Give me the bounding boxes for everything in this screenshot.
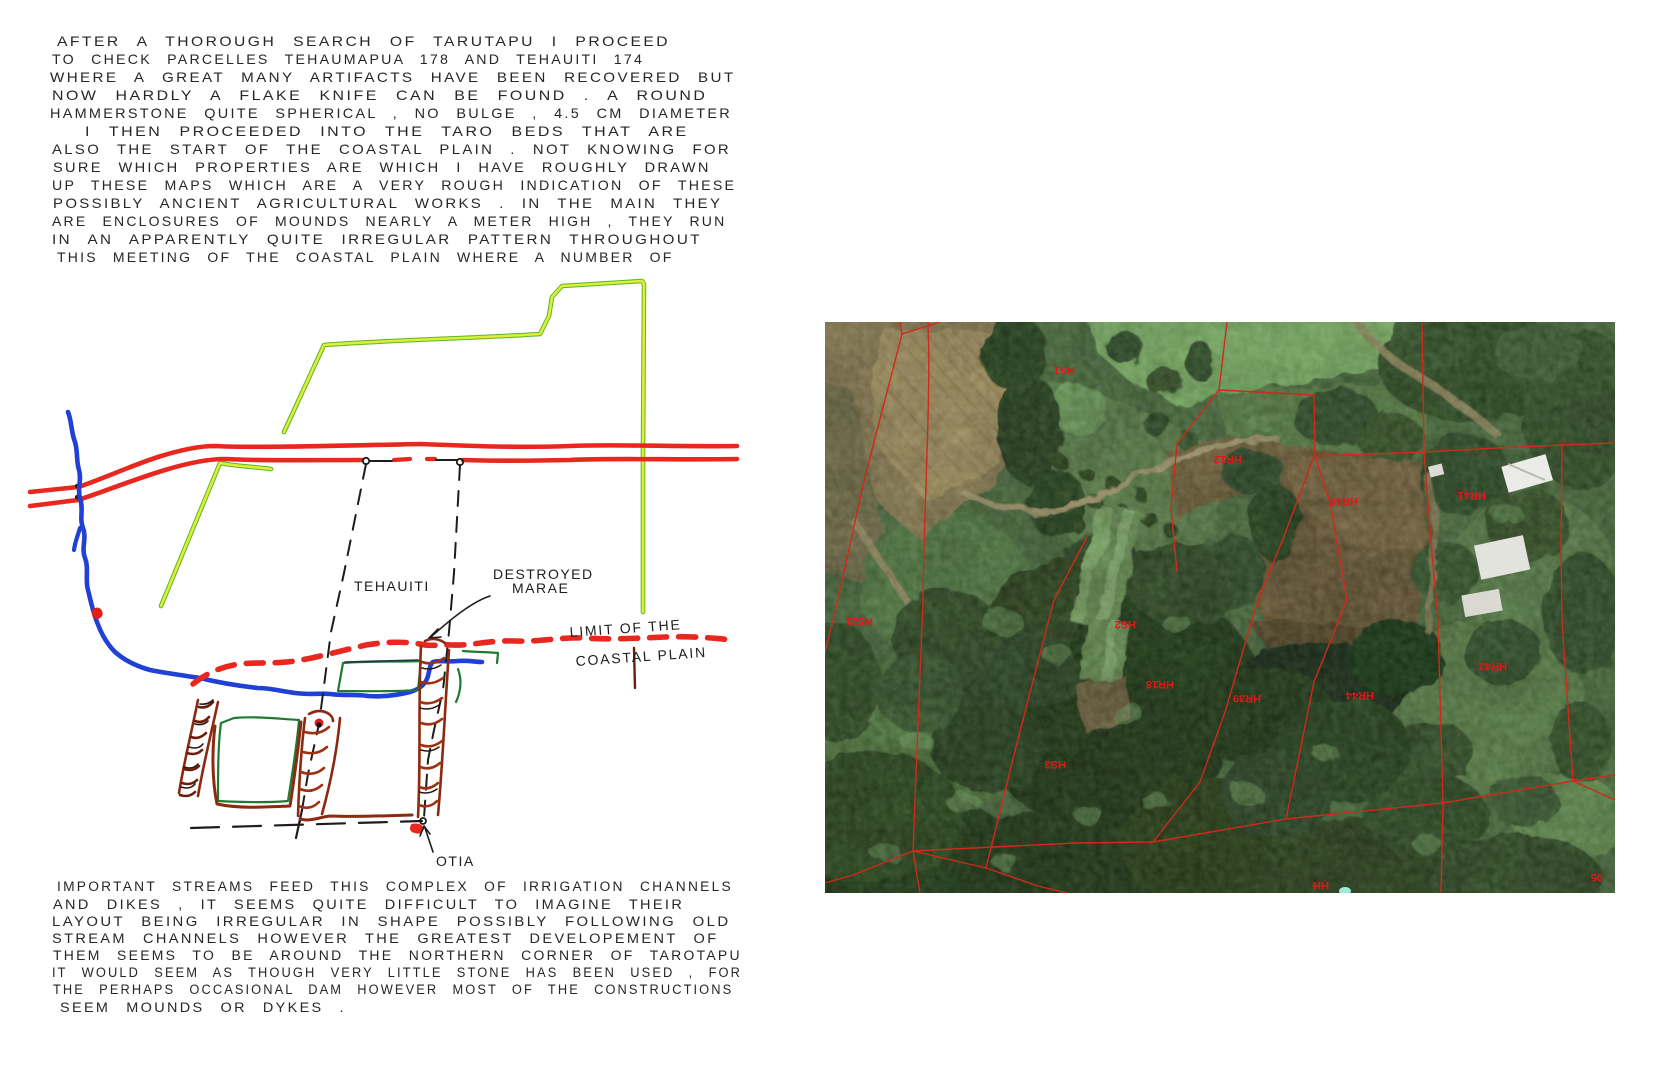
svg-text:HR41: HR41 xyxy=(1458,489,1486,501)
svg-text:HR18: HR18 xyxy=(1146,678,1174,690)
svg-text:05: 05 xyxy=(1591,871,1603,883)
svg-text:HR39: HR39 xyxy=(1233,692,1261,704)
svg-text:COASTAL PLAIN: COASTAL PLAIN xyxy=(575,644,707,669)
svg-text:HS1: HS1 xyxy=(1054,364,1075,376)
svg-text:HR40: HR40 xyxy=(1330,495,1358,507)
svg-text:HH: HH xyxy=(1313,879,1329,891)
svg-text:MARAE: MARAE xyxy=(512,580,569,596)
svg-text:HS2: HS2 xyxy=(1115,618,1136,630)
svg-text:HR43: HR43 xyxy=(1479,660,1507,672)
svg-text:TEHAUITI: TEHAUITI xyxy=(354,578,430,594)
svg-text:HR12: HR12 xyxy=(1214,453,1242,465)
svg-text:OTIA: OTIA xyxy=(436,853,475,869)
svg-text:HR44: HR44 xyxy=(1345,689,1374,701)
svg-text:HS3: HS3 xyxy=(1045,758,1066,770)
svg-text:HS21: HS21 xyxy=(845,615,873,627)
